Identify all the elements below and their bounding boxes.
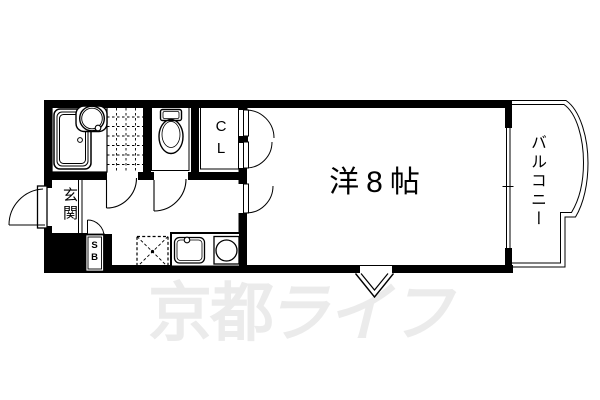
balcony-label: バルコニー [524,134,548,244]
toilet-room [152,108,190,171]
shoebox-label-line1: S [86,240,103,252]
bathroom-sink [76,106,107,132]
bottom-wall-gap [360,265,392,274]
entrance-label: 玄関 [59,187,80,231]
closet-label: CL [209,116,233,160]
direction-triangle-marker [355,274,394,298]
main-room-label: 洋8帖 [318,166,438,200]
room-entry-door [244,184,274,213]
bath-door [107,178,137,208]
closet-doors [244,110,275,168]
entrance-door [9,186,47,228]
walls [44,100,513,273]
tile-floor [107,108,143,172]
closet-label-line1: C [209,116,233,138]
floor-plan [0,0,600,400]
balcony-window [503,128,514,248]
closet-label-line2: L [209,138,233,160]
shoebox-label: SB [86,240,103,263]
shoebox-label-line2: B [86,252,103,264]
toilet [159,110,183,154]
refrigerator-space [137,237,168,268]
page: { "floorplan": { "room_label": "洋8帖", "e… [0,0,600,400]
toilet-door [154,179,186,211]
kitchen-counter [171,233,240,267]
bathroom [52,106,143,172]
